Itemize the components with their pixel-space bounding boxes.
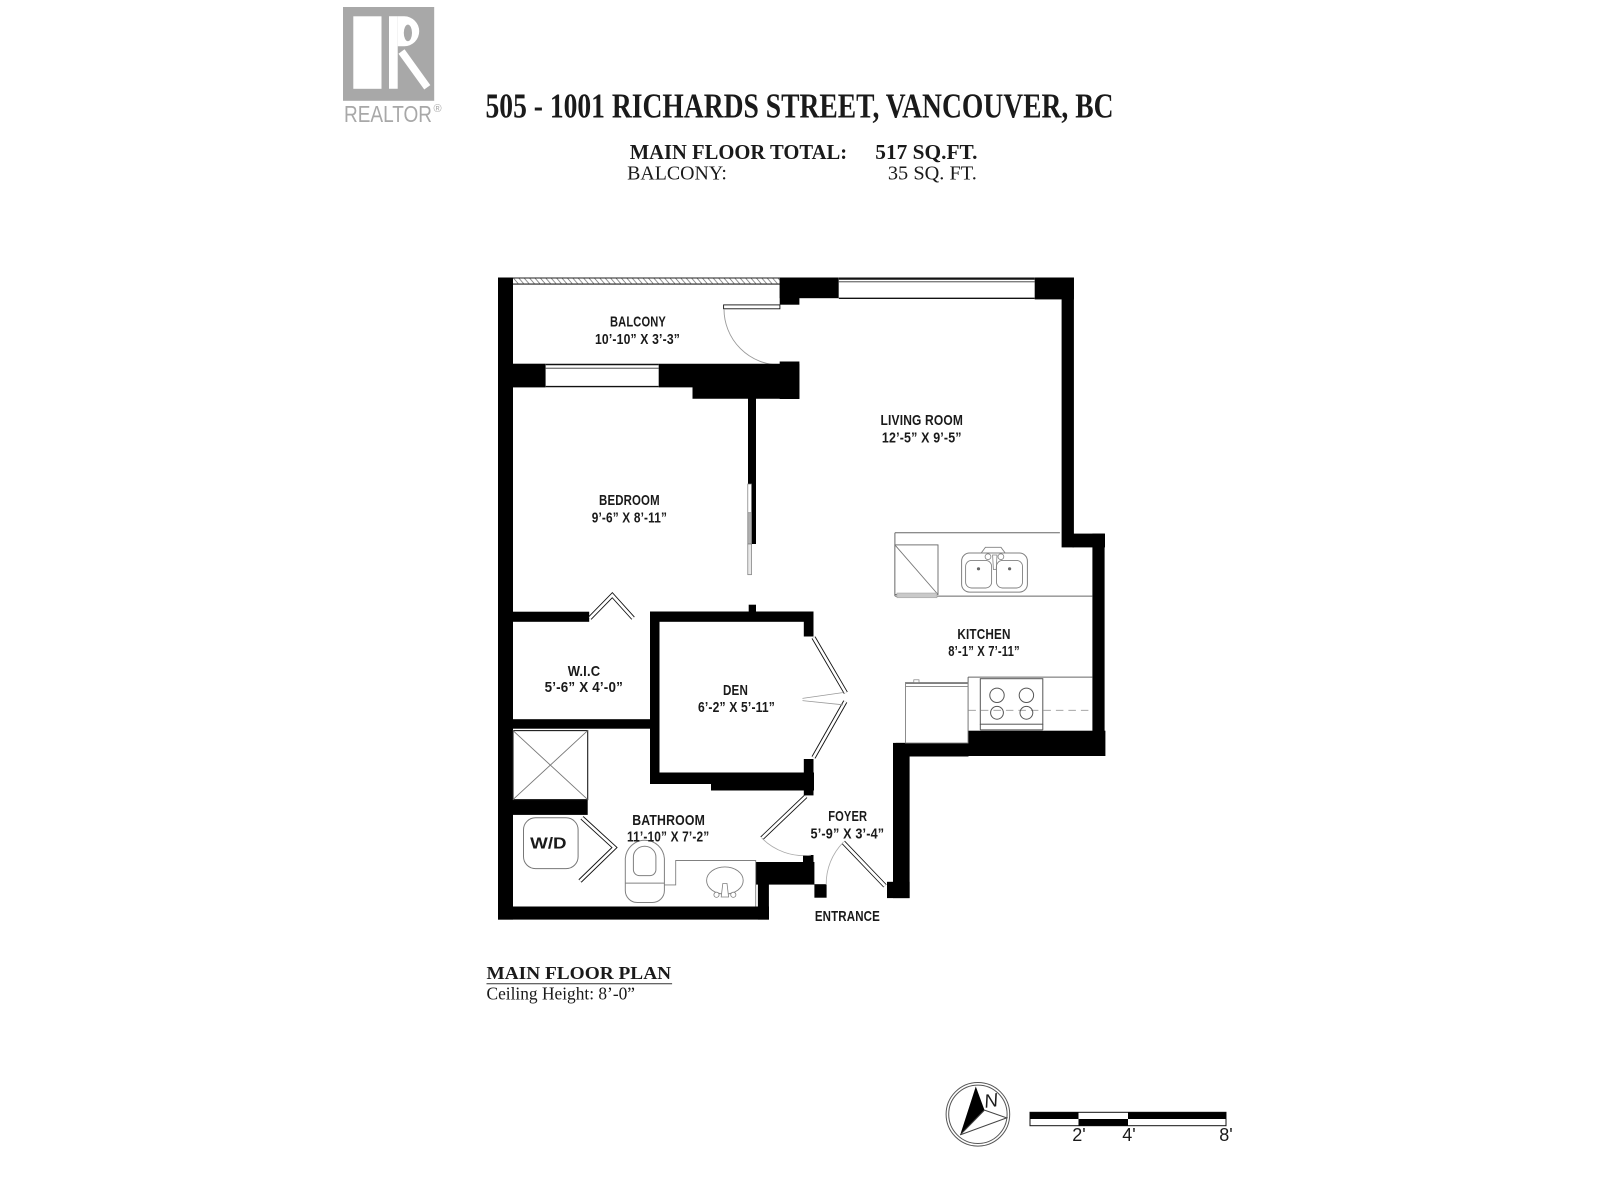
svg-text:DEN: DEN — [723, 682, 748, 699]
svg-text:BEDROOM: BEDROOM — [599, 492, 660, 509]
svg-text:®: ® — [434, 103, 442, 115]
svg-text:BALCONY: BALCONY — [610, 314, 666, 331]
svg-text:6’-2” X 5’-11”: 6’-2” X 5’-11” — [698, 699, 775, 716]
svg-text:LIVING ROOM: LIVING ROOM — [881, 412, 964, 429]
svg-text:FOYER: FOYER — [828, 808, 867, 825]
svg-text:10’-10” X 3’-3”: 10’-10” X 3’-3” — [595, 331, 680, 348]
svg-text:12’-5” X 9’-5”: 12’-5” X 9’-5” — [882, 430, 962, 447]
svg-text:W/D: W/D — [530, 836, 566, 853]
svg-text:MAIN FLOOR TOTAL:: MAIN FLOOR TOTAL: — [630, 140, 847, 164]
svg-text:8’-1” X 7’-11”: 8’-1” X 7’-11” — [948, 643, 1020, 660]
svg-text:MAIN FLOOR PLAN: MAIN FLOOR PLAN — [487, 963, 672, 983]
svg-text:4': 4' — [1122, 1125, 1135, 1145]
svg-text:35 SQ. FT.: 35 SQ. FT. — [888, 162, 977, 184]
svg-text:ENTRANCE: ENTRANCE — [815, 908, 880, 925]
svg-text:11’-10” X 7’-2”: 11’-10” X 7’-2” — [627, 829, 709, 846]
svg-text:REALTOR: REALTOR — [344, 101, 432, 127]
svg-text:W.I.C: W.I.C — [568, 663, 601, 680]
svg-text:9’-6” X 8’-11”: 9’-6” X 8’-11” — [592, 509, 667, 526]
svg-text:BATHROOM: BATHROOM — [632, 812, 705, 829]
svg-text:517 SQ.FT.: 517 SQ.FT. — [875, 140, 977, 164]
svg-text:BALCONY:: BALCONY: — [627, 162, 727, 184]
svg-text:KITCHEN: KITCHEN — [957, 626, 1010, 643]
svg-text:505 - 1001 RICHARDS STREET, VA: 505 - 1001 RICHARDS STREET, VANCOUVER, B… — [486, 88, 1114, 126]
svg-text:8': 8' — [1219, 1125, 1232, 1145]
svg-text:5’-6” X 4’-0”: 5’-6” X 4’-0” — [545, 679, 623, 696]
svg-text:2': 2' — [1072, 1125, 1085, 1145]
svg-text:5’-9” X 3’-4”: 5’-9” X 3’-4” — [811, 826, 885, 843]
svg-text:Ceiling Height: 8’-0”: Ceiling Height: 8’-0” — [487, 984, 636, 1004]
